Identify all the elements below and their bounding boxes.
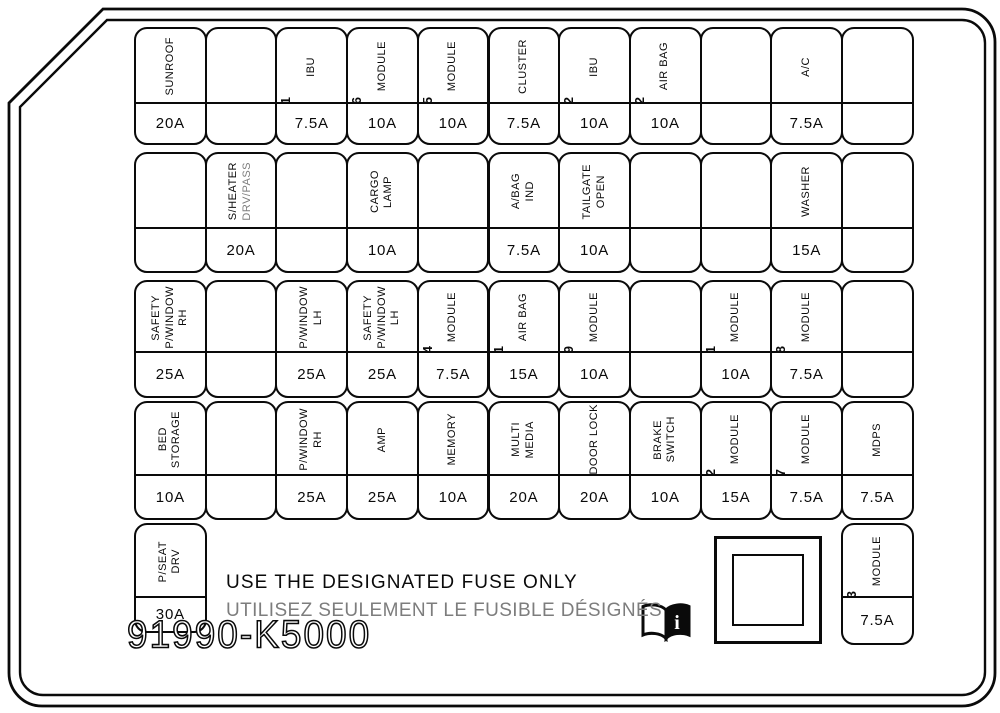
- fuse-label-area: [136, 154, 205, 229]
- fuse-label-area: MODULE5: [419, 29, 488, 104]
- fuse-washer: WASHER15A: [770, 152, 843, 273]
- fuse-label-line: IBU: [306, 57, 318, 77]
- empty-slot: [205, 280, 278, 398]
- fuse-p-window-rh: P/WINDOWRH25A: [275, 401, 348, 520]
- fuse-amp: 10A: [631, 102, 700, 143]
- fuse-amp: [207, 102, 276, 143]
- fuse-door-lock: DOOR LOCK20A: [558, 401, 631, 520]
- fuse-bed-storage: BEDSTORAGE10A: [134, 401, 207, 520]
- fuse-module: MODULE110A: [700, 280, 773, 398]
- fuse-amp: 20A: [560, 474, 629, 518]
- fuse-module: MODULE215A: [700, 401, 773, 520]
- empty-slot: [205, 27, 278, 145]
- fuse-label-area: MODULE7: [772, 403, 841, 476]
- empty-slot: [275, 152, 348, 273]
- fuse-label-area: MDPS: [843, 403, 912, 476]
- fuse-label-area: SAFETYP/WINDOWRH: [136, 282, 205, 353]
- fuse-label-line: MODULE: [447, 292, 459, 342]
- fuse-label-line: MEDIA: [525, 421, 537, 458]
- fuse-module: MODULE77.5A: [770, 401, 843, 520]
- fuse-label-area: MODULE4: [419, 282, 488, 353]
- fuse-memory: MEMORY10A: [417, 401, 490, 520]
- fuse-label-area: [631, 154, 700, 229]
- fuse-label-line: MODULE: [730, 414, 742, 464]
- fuse-module: MODULE47.5A: [417, 280, 490, 398]
- fuse-cargo-lamp: CARGOLAMP10A: [346, 152, 419, 273]
- fuse-ibu: IBU17.5A: [275, 27, 348, 145]
- fuse-amp: 25A: [348, 351, 417, 396]
- fuse-amp: 20A: [207, 227, 276, 271]
- fuse-label-area: [702, 29, 771, 104]
- relay-box: [714, 536, 822, 644]
- fuse-amp: 25A: [136, 351, 205, 396]
- fuse-label-line: MODULE: [801, 292, 813, 342]
- fuse-amp: 25A: [277, 474, 346, 518]
- fuse-sunroof: SUNROOF20A: [134, 27, 207, 145]
- fuse-label-line: CARGO: [370, 170, 382, 213]
- fuse-label-area: BEDSTORAGE: [136, 403, 205, 476]
- fuse-amp: 25A: [277, 351, 346, 396]
- fuse-label-line: MODULE: [801, 414, 813, 464]
- fuse-amp: 10A: [419, 474, 488, 518]
- fuse-label-line: A/C: [801, 57, 813, 77]
- fuse-label-area: IBU1: [277, 29, 346, 104]
- fuse-amp: 10A: [136, 474, 205, 518]
- fuse-label-line: RH: [178, 309, 190, 326]
- fuse-label-line: IND: [525, 181, 537, 201]
- fuse-label-line: OPEN: [596, 175, 608, 208]
- fuse-amp: [277, 227, 346, 271]
- fuse-label-line: BED: [158, 427, 170, 451]
- fuse-amp: [843, 102, 912, 143]
- fuse-amp: 15A: [702, 474, 771, 518]
- fuse-label-area: S/HEATERDRV/PASS: [207, 154, 276, 229]
- fuse-label-line: P/SEAT: [158, 541, 170, 582]
- fuse-amp: [631, 351, 700, 396]
- fuse-label-area: SUNROOF: [136, 29, 205, 104]
- fuse-amp: 20A: [490, 474, 559, 518]
- fuse-amp: 7.5A: [490, 227, 559, 271]
- fuse-label-area: [843, 282, 912, 353]
- fuse-label-line: DOOR LOCK: [589, 404, 601, 475]
- empty-slot: [700, 152, 773, 273]
- fuse-air-bag: AIR BAG115A: [488, 280, 561, 398]
- fuse-label-area: MODULE8: [772, 282, 841, 353]
- fuse-label-line: MODULE: [447, 41, 459, 91]
- fuse-label-area: P/WINDOWRH: [277, 403, 346, 476]
- fuse-label-area: [277, 154, 346, 229]
- fuse-label-area: MODULE9: [560, 282, 629, 353]
- fuse-module: MODULE87.5A: [770, 280, 843, 398]
- fuse-amp: 7.5A: [772, 474, 841, 518]
- fuse-a-c: A/C7.5A: [770, 27, 843, 145]
- notice-line-1: USE THE DESIGNATED FUSE ONLY: [226, 572, 578, 594]
- fuse-p-window-lh: P/WINDOWLH25A: [275, 280, 348, 398]
- fuse-amp: 7.5A: [772, 102, 841, 143]
- fuse-label-area: IBU2: [560, 29, 629, 104]
- fuse-amp: 10A: [348, 227, 417, 271]
- fuse-amp: 10A: [702, 351, 771, 396]
- empty-slot: [841, 280, 914, 398]
- fuse-amp: [207, 351, 276, 396]
- fuse-box-diagram: SUNROOF20AIBU17.5AMODULE610AMODULE510ACL…: [0, 0, 1000, 713]
- fuse-label-area: P/WINDOWLH: [277, 282, 346, 353]
- fuse-label-line: MODULE: [730, 292, 742, 342]
- fuse-amp: [207, 474, 276, 518]
- fuse-label-line: SUNROOF: [165, 37, 177, 96]
- empty-slot: [205, 401, 278, 520]
- fuse-brake-switch: BRAKESWITCH10A: [629, 401, 702, 520]
- fuse-label-area: MODULE6: [348, 29, 417, 104]
- empty-slot: [700, 27, 773, 145]
- fuse-module: MODULE610A: [346, 27, 419, 145]
- fuse-label-line: MODULE: [589, 292, 601, 342]
- fuse-amp: 7.5A: [843, 596, 912, 643]
- empty-slot: [841, 152, 914, 273]
- fuse-label-line: P/WINDOW: [377, 286, 389, 349]
- fuse-amp: 10A: [560, 351, 629, 396]
- empty-slot: [417, 152, 490, 273]
- fuse-safety-p-window-rh: SAFETYP/WINDOWRH25A: [134, 280, 207, 398]
- fuse-label-area: [207, 29, 276, 104]
- fuse-label-area: TAILGATEOPEN: [560, 154, 629, 229]
- fuse-label-area: MEMORY: [419, 403, 488, 476]
- fuse-label-line: P/WINDOW: [165, 286, 177, 349]
- fuse-amp: AMP25A: [346, 401, 419, 520]
- fuse-amp: [843, 351, 912, 396]
- fuse-label-line: S/HEATER: [228, 162, 240, 220]
- fuse-label-line: RH: [313, 431, 325, 448]
- fuse-label-area: CLUSTER: [490, 29, 559, 104]
- fuse-label-line: CLUSTER: [518, 39, 530, 94]
- fuse-module: MODULE510A: [417, 27, 490, 145]
- fuse-amp: 20A: [136, 102, 205, 143]
- fuse-label-line: MDPS: [872, 423, 884, 457]
- fuse-amp: 7.5A: [277, 102, 346, 143]
- fuse-label-area: [419, 154, 488, 229]
- fuse-safety-p-window-lh: SAFETYP/WINDOWLH25A: [346, 280, 419, 398]
- empty-slot: [629, 152, 702, 273]
- fuse-tailgate-open: TAILGATEOPEN10A: [558, 152, 631, 273]
- fuse-label-area: CARGOLAMP: [348, 154, 417, 229]
- part-number: 91990-K5000: [127, 613, 371, 657]
- fuse-label-line: A/BAG: [511, 173, 523, 209]
- fuse-label-area: AMP: [348, 403, 417, 476]
- fuse-label-line: MULTI: [511, 422, 523, 457]
- fuse-amp: 10A: [419, 102, 488, 143]
- fuse-label-area: WASHER: [772, 154, 841, 229]
- fuse-amp: 10A: [560, 227, 629, 271]
- fuse-label-area: BRAKESWITCH: [631, 403, 700, 476]
- fuse-label-line: AIR BAG: [659, 42, 671, 90]
- fuse-label-area: P/SEATDRV: [136, 525, 205, 598]
- fuse-label-area: [631, 282, 700, 353]
- fuse-label-area: DOOR LOCK: [560, 403, 629, 476]
- fuse-amp: 7.5A: [843, 474, 912, 518]
- fuse-label-line: SAFETY: [363, 295, 375, 341]
- fuse-label-line: TAILGATE: [582, 164, 594, 220]
- fuse-label-area: [843, 29, 912, 104]
- fuse-label-area: [207, 282, 276, 353]
- fuse-label-line: AMP: [377, 427, 389, 452]
- fuse-amp: 25A: [348, 474, 417, 518]
- fuse-label-area: AIR BAG1: [490, 282, 559, 353]
- fuse-label-line: LAMP: [383, 176, 395, 208]
- fuse-amp: [631, 227, 700, 271]
- fuse-label-line: MODULE: [377, 41, 389, 91]
- fuse-label-line: MODULE: [872, 536, 884, 586]
- fuse-amp: 15A: [490, 351, 559, 396]
- fuse-label-area: [843, 154, 912, 229]
- fuse-label-line: P/WINDOW: [299, 286, 311, 349]
- fuse-module: MODULE37.5A: [841, 523, 914, 645]
- fuse-module: MODULE910A: [558, 280, 631, 398]
- fuse-label-line: AIR BAG: [518, 293, 530, 341]
- fuse-label-area: A/BAGIND: [490, 154, 559, 229]
- fuse-amp: 15A: [772, 227, 841, 271]
- empty-slot: [841, 27, 914, 145]
- fuse-label-area: MODULE2: [702, 403, 771, 476]
- fuse-label-line: LH: [390, 310, 402, 325]
- fuse-s-heater-drv-pass: S/HEATERDRV/PASS20A: [205, 152, 278, 273]
- fuse-a-bag-ind: A/BAGIND7.5A: [488, 152, 561, 273]
- fuse-mdps: MDPS7.5A: [841, 401, 914, 520]
- fuse-amp: 10A: [631, 474, 700, 518]
- fuse-amp: 7.5A: [419, 351, 488, 396]
- fuse-label-area: MODULE3: [843, 525, 912, 598]
- fuse-ibu: IBU210A: [558, 27, 631, 145]
- fuse-amp: 7.5A: [490, 102, 559, 143]
- fuse-amp: 10A: [348, 102, 417, 143]
- fuse-label-area: [207, 403, 276, 476]
- fuse-label-area: MODULE1: [702, 282, 771, 353]
- fuse-amp: [419, 227, 488, 271]
- fuse-label-line: MEMORY: [447, 413, 459, 465]
- fuse-label-area: SAFETYP/WINDOWLH: [348, 282, 417, 353]
- fuse-amp: 7.5A: [772, 351, 841, 396]
- fuse-label-line: WASHER: [801, 166, 813, 217]
- fuse-label-line: SAFETY: [151, 295, 163, 341]
- svg-text:i: i: [674, 612, 680, 634]
- fuse-label-line: P/WINDOW: [299, 408, 311, 471]
- fuse-amp: [702, 102, 771, 143]
- relay-box-inner: [732, 554, 804, 626]
- fuse-label-line: SWITCH: [666, 416, 678, 462]
- fuse-air-bag: AIR BAG210A: [629, 27, 702, 145]
- fuse-amp: 10A: [560, 102, 629, 143]
- fuse-amp: [702, 227, 771, 271]
- fuse-label-line: STORAGE: [171, 411, 183, 468]
- empty-slot: [629, 280, 702, 398]
- empty-slot: [134, 152, 207, 273]
- fuse-label-line: LH: [313, 310, 325, 325]
- fuse-label-line: DRV/PASS: [242, 162, 254, 221]
- fuse-label-area: AIR BAG2: [631, 29, 700, 104]
- fuse-label-line: DRV: [171, 549, 183, 574]
- fuse-label-line: BRAKE: [653, 420, 665, 460]
- fuse-amp: [843, 227, 912, 271]
- fuse-label-area: MULTIMEDIA: [490, 403, 559, 476]
- fuse-multi-media: MULTIMEDIA20A: [488, 401, 561, 520]
- fuse-label-line: IBU: [589, 57, 601, 77]
- fuse-cluster: CLUSTER7.5A: [488, 27, 561, 145]
- fuse-label-area: A/C: [772, 29, 841, 104]
- fuse-amp: [136, 227, 205, 271]
- fuse-label-area: [702, 154, 771, 229]
